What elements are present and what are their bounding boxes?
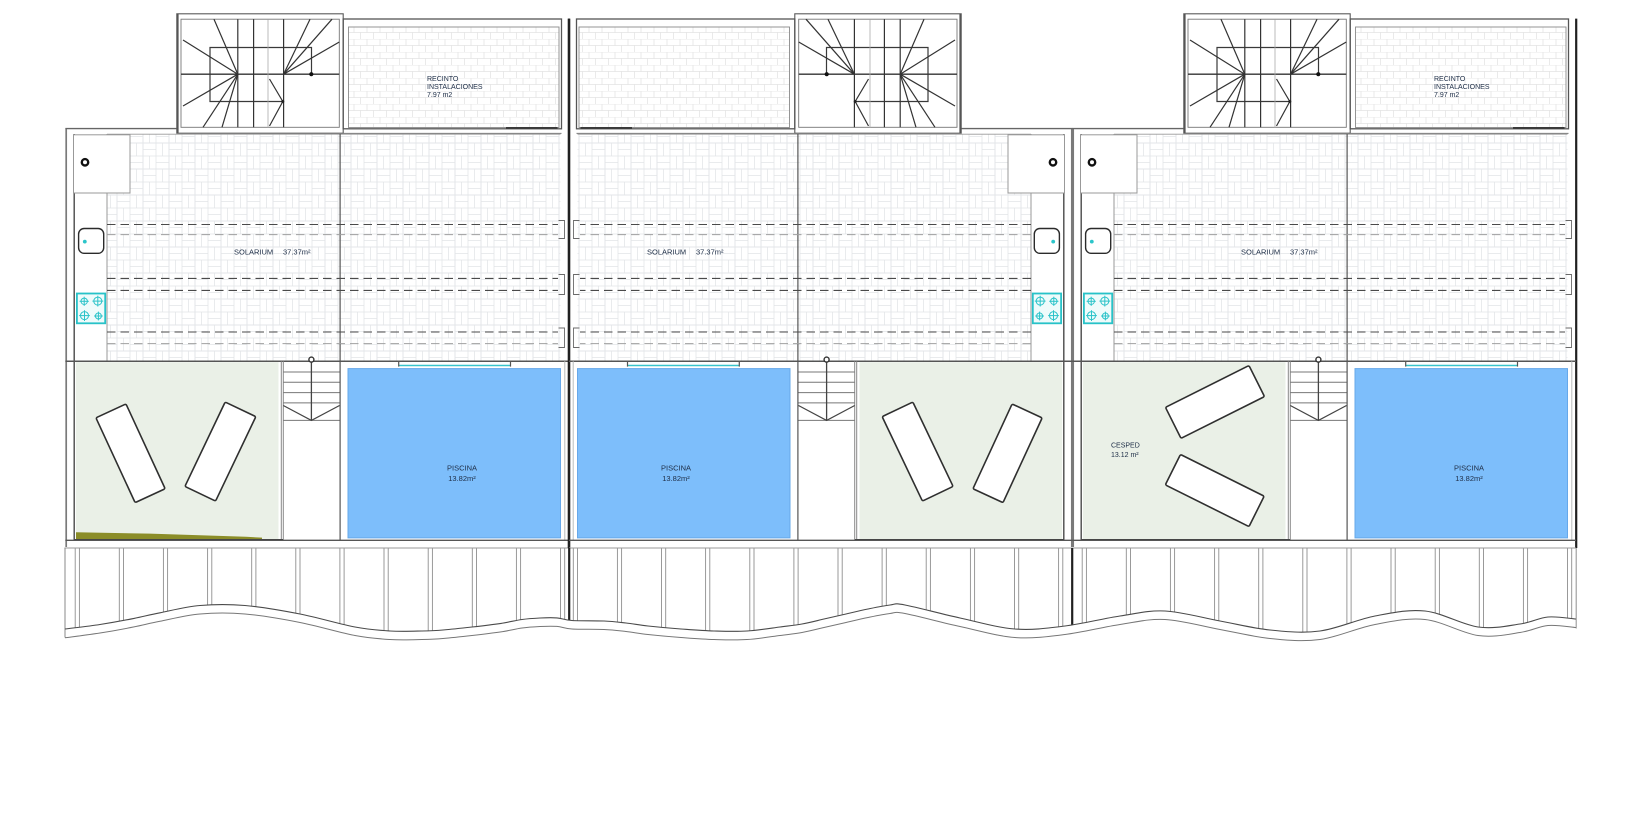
svg-text:37.37m²: 37.37m² [1290, 247, 1318, 256]
svg-text:PISCINA: PISCINA [1454, 464, 1484, 473]
svg-text:7.97 m2: 7.97 m2 [427, 92, 452, 99]
svg-text:PISCINA: PISCINA [447, 464, 477, 473]
svg-text:37.37m²: 37.37m² [283, 247, 311, 256]
svg-text:13.82m²: 13.82m² [1455, 474, 1483, 483]
svg-text:PISCINA: PISCINA [661, 464, 691, 473]
svg-text:RECINTO: RECINTO [1434, 76, 1466, 83]
svg-text:INSTALACIONES: INSTALACIONES [427, 84, 483, 91]
svg-text:13.82m²: 13.82m² [448, 474, 476, 483]
svg-text:INSTALACIONES: INSTALACIONES [1434, 84, 1490, 91]
svg-text:RECINTO: RECINTO [427, 76, 459, 83]
svg-text:13.82m²: 13.82m² [662, 474, 690, 483]
svg-text:SOLARIUM: SOLARIUM [234, 247, 273, 256]
svg-text:7.97 m2: 7.97 m2 [1434, 92, 1459, 99]
svg-text:SOLARIUM: SOLARIUM [647, 247, 686, 256]
svg-text:13.12 m²: 13.12 m² [1111, 452, 1139, 459]
svg-text:CESPED: CESPED [1111, 443, 1140, 450]
svg-text:37.37m²: 37.37m² [696, 247, 724, 256]
svg-text:SOLARIUM: SOLARIUM [1241, 247, 1280, 256]
